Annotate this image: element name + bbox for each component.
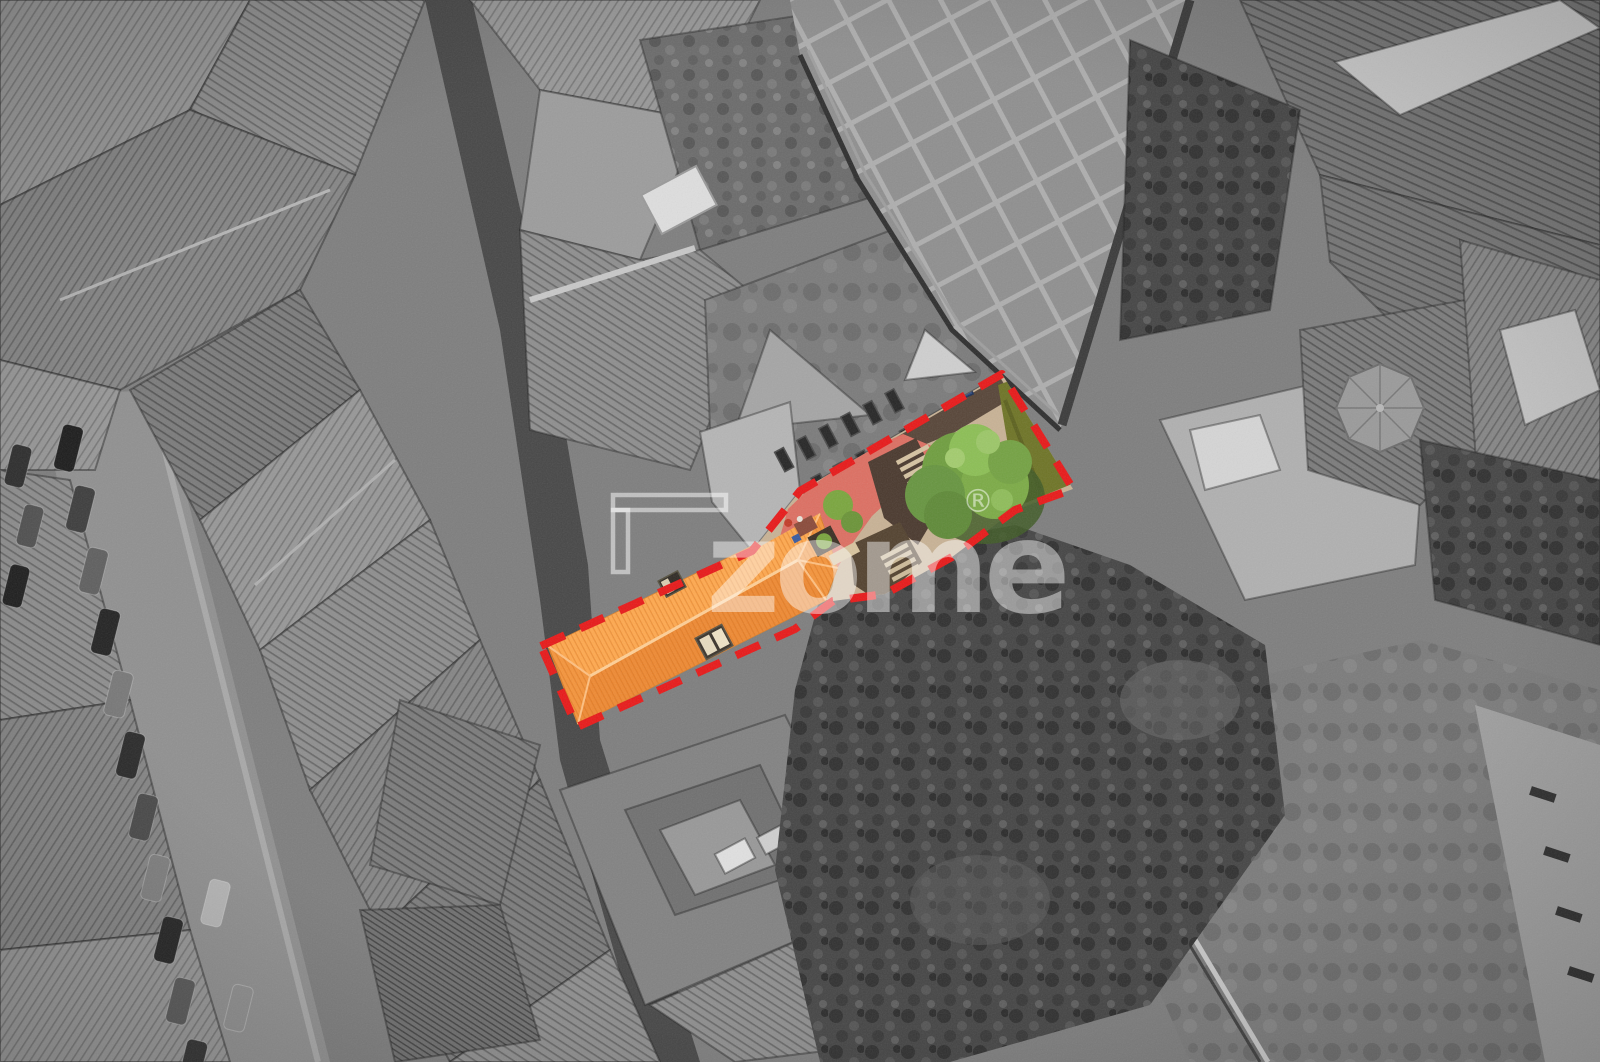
aerial-photo: zome ®	[0, 0, 1600, 1062]
watermark-text: zome	[706, 494, 1065, 643]
registered-mark: ®	[962, 482, 994, 520]
